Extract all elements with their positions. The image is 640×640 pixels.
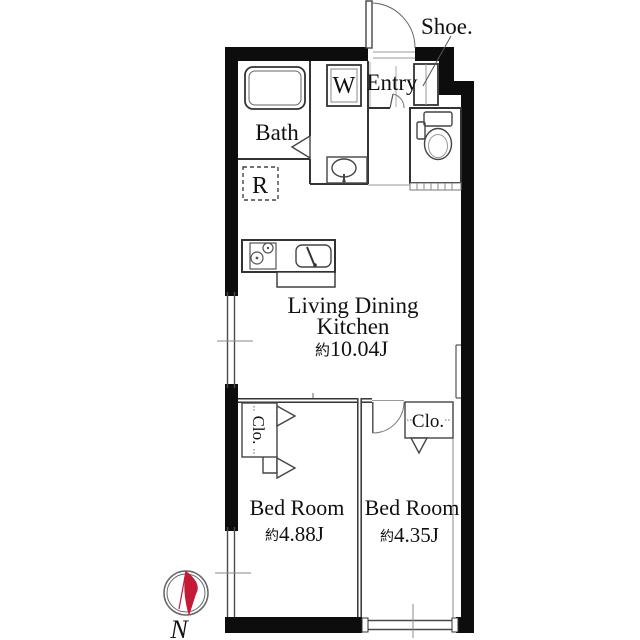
entry-door-leaf <box>366 1 372 48</box>
wall-left-upper <box>225 47 238 292</box>
wall-bottom-right <box>456 617 474 633</box>
closet2-door-marker <box>411 438 427 453</box>
window-bedroom2-bottom <box>362 604 458 638</box>
bedroom1-area-value: 4.88J <box>279 522 324 546</box>
kitchen <box>242 167 461 398</box>
bedroom1-area-prefix: 約 <box>265 528 279 544</box>
refrigerator-label: R <box>252 173 268 199</box>
compass-north-label: N <box>169 615 189 640</box>
closet1-label: Clo. <box>249 416 268 445</box>
bedroom2-area-value: 4.35J <box>394 523 439 547</box>
faucet-base <box>313 263 317 267</box>
compass: N <box>164 571 208 640</box>
ldk-wall-notch <box>456 345 461 398</box>
basin-drain <box>342 179 345 182</box>
closet1-lower-box <box>263 457 277 473</box>
floorplan-drawing: N Shoe. Entry W Bath R Living Dining Kit… <box>0 0 640 640</box>
toilet-room-walls <box>410 108 461 183</box>
bedroom1-label: Bed Room <box>250 495 345 520</box>
window-cap <box>362 618 368 632</box>
washer-label: W <box>333 73 356 99</box>
entry-door-swing-arc <box>373 3 415 48</box>
window-bedroom1-left <box>215 527 251 617</box>
bath-label: Bath <box>255 120 299 145</box>
kitchen-counter-step <box>277 272 335 287</box>
window-cap <box>452 618 458 632</box>
wash-basin <box>327 157 367 183</box>
bedroom2-door-swing-arc <box>373 402 404 433</box>
bedroom2-label: Bed Room <box>365 495 460 520</box>
bedroom2-area-prefix: 約 <box>380 529 394 545</box>
closet2-label: Clo. <box>412 411 444 432</box>
closet1-door-marker <box>277 406 295 426</box>
shoe-label: Shoe. <box>421 14 473 39</box>
ldk-area-value: 10.04J <box>330 336 389 361</box>
entry-label: Entry <box>366 70 418 95</box>
closet1-door-marker <box>277 458 295 478</box>
wall-bottom-left <box>225 617 362 633</box>
toilet-room <box>410 108 461 190</box>
floorplan-page: N Shoe. Entry W Bath R Living Dining Kit… <box>0 0 640 640</box>
hall-door-swing-arc <box>393 94 404 108</box>
bathtub <box>245 67 305 109</box>
wall-left-mid <box>225 388 238 527</box>
wall-top-right <box>415 47 441 61</box>
wall-top-left <box>225 47 368 61</box>
bathtub-inner <box>249 71 301 105</box>
toilet-step-hatch <box>410 183 461 190</box>
entry-door <box>366 1 415 58</box>
ldk-area-prefix: 約 <box>315 342 330 359</box>
window-ldk-left <box>217 292 253 388</box>
hall-door-leaf <box>390 94 393 108</box>
